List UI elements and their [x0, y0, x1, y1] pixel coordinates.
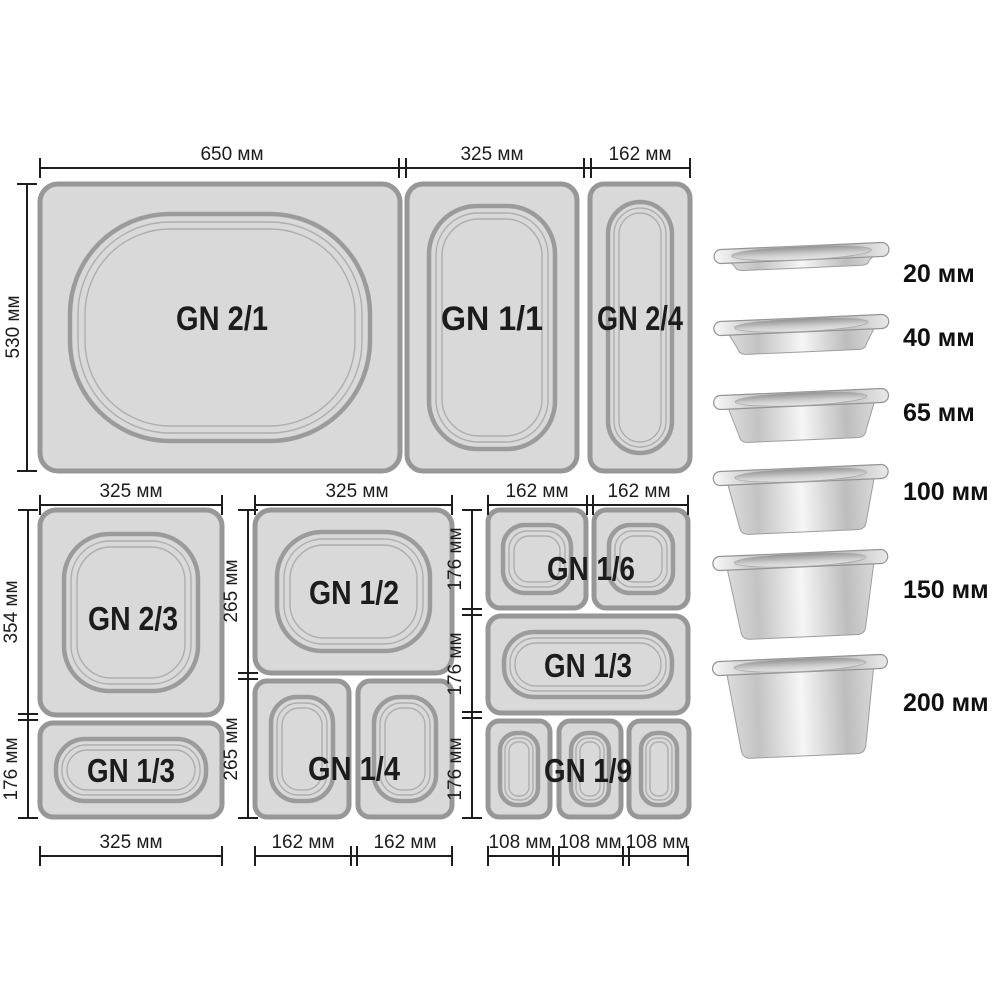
photo-pan-40mm	[714, 314, 890, 356]
pan-label-gn-1-6: GN 1/6	[547, 550, 635, 587]
dim-label-176mm-r3: 176 мм	[445, 737, 466, 800]
depth-label-100mm: 100 мм	[903, 478, 989, 506]
pan-label-gn-2-4: GN 2/4	[597, 300, 683, 338]
dim-top-widths: 650 мм 325 мм 162 мм	[40, 144, 690, 178]
pan-gn-1-4-left	[255, 681, 349, 817]
pan-label-gn-1-3-left: GN 1/3	[87, 752, 175, 789]
photo-pan-150mm	[713, 549, 891, 641]
dim-top-height: 530 мм	[3, 184, 37, 471]
dim-label-176mm-left: 176 мм	[1, 737, 22, 800]
pan-gn-2-1: GN 2/1	[40, 184, 400, 471]
pan-gn-1-1: GN 1/1	[407, 184, 577, 471]
dim-label-265mm-upper: 265 мм	[221, 559, 242, 622]
dim-label-265mm-lower: 265 мм	[221, 717, 242, 780]
dim-label-650mm: 650 мм	[200, 144, 263, 165]
pan-label-gn-1-2: GN 1/2	[309, 574, 399, 611]
pan-gn-1-9-a	[488, 721, 550, 817]
dim-label-162mm-right-t1: 162 мм	[505, 481, 568, 502]
depth-label-65mm: 65 мм	[903, 399, 975, 427]
dim-label-325mm-mid-top: 325 мм	[325, 481, 388, 502]
dim-label-176mm-r2: 176 мм	[445, 632, 466, 695]
pan-label-gn-1-1: GN 1/1	[441, 300, 543, 338]
pan-label-gn-1-9: GN 1/9	[544, 752, 632, 789]
pan-gn-2-4: GN 2/4	[590, 184, 690, 471]
pan-label-gn-2-3: GN 2/3	[88, 600, 178, 637]
depth-label-20mm: 20 мм	[903, 260, 975, 288]
photo-pan-20mm	[714, 242, 890, 272]
pan-label-gn-2-1: GN 2/1	[176, 300, 268, 338]
dim-label-108mm-b2: 108 мм	[558, 832, 621, 853]
dim-label-108mm-b1: 108 мм	[488, 832, 551, 853]
pan-gn-1-3-right: GN 1/3	[488, 616, 688, 713]
dim-label-162mm-mid-b2: 162 мм	[373, 832, 436, 853]
pan-gn-2-3: GN 2/3	[40, 510, 222, 715]
gn-container-size-diagram: GN 2/1 GN 1/1 GN 2/4 650 мм 325 мм 162 м…	[0, 0, 1000, 1000]
dim-label-162mm-right-t2: 162 мм	[607, 481, 670, 502]
dim-label-325mm-left-bottom: 325 мм	[99, 832, 162, 853]
pan-label-gn-1-3-right: GN 1/3	[544, 647, 632, 684]
dim-label-325mm-top: 325 мм	[460, 144, 523, 165]
dim-label-176mm-r1: 176 мм	[445, 527, 466, 590]
dim-label-162mm-top: 162 мм	[608, 144, 671, 165]
depth-label-200mm: 200 мм	[903, 689, 989, 717]
pan-gn-1-9-c	[629, 721, 689, 817]
photo-pan-200mm	[712, 654, 891, 760]
dim-label-354mm: 354 мм	[1, 580, 22, 643]
depth-label-40mm: 40 мм	[903, 324, 975, 352]
pan-gn-1-4-right	[358, 681, 452, 817]
dim-label-325mm-left-top: 325 мм	[99, 481, 162, 502]
photo-pan-100mm	[713, 464, 891, 536]
dim-label-108mm-b3: 108 мм	[625, 832, 688, 853]
pan-label-gn-1-4: GN 1/4	[308, 750, 401, 787]
depth-label-150mm: 150 мм	[903, 576, 989, 604]
dim-label-530mm: 530 мм	[3, 295, 24, 358]
pan-gn-1-2: GN 1/2	[255, 510, 452, 673]
dim-label-162mm-mid-b1: 162 мм	[271, 832, 334, 853]
pan-gn-1-3-left: GN 1/3	[40, 723, 222, 817]
photo-pan-65mm	[713, 388, 890, 444]
diagram-svg: GN 2/1 GN 1/1 GN 2/4 650 мм 325 мм 162 м…	[0, 0, 1000, 1000]
